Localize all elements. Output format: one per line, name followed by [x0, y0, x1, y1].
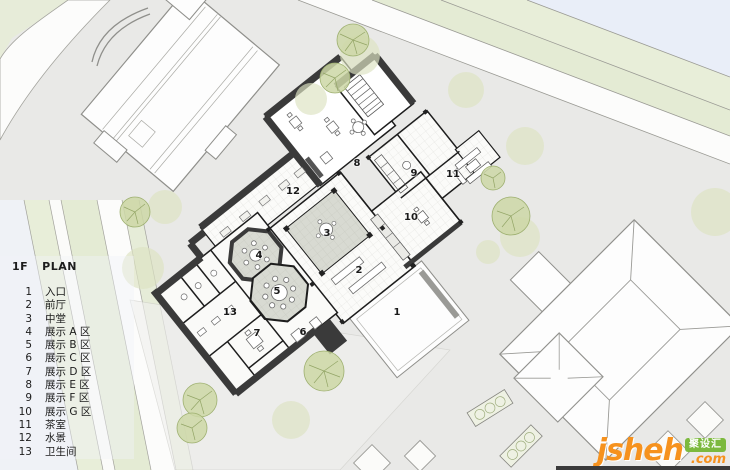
legend-header: 1F PLAN: [12, 260, 134, 273]
watermark-suffix: .com: [691, 453, 726, 466]
legend-item-no: 13: [12, 446, 32, 459]
legend-item: 8展示 E 区: [12, 379, 134, 392]
legend-item-no: 4: [12, 326, 32, 339]
legend-item-no: 1: [12, 286, 32, 299]
legend-item-label: 展示 C 区: [45, 352, 91, 365]
room-label-7: 7: [254, 328, 261, 339]
legend-item-label: 前厅: [45, 299, 66, 312]
room-label-11: 11: [446, 169, 460, 180]
room-label-2: 2: [356, 265, 363, 276]
legend-item-label: 水景: [45, 432, 66, 445]
legend-item-no: 9: [12, 392, 32, 405]
legend-item-no: 5: [12, 339, 32, 352]
legend-item: 7展示 D 区: [12, 366, 134, 379]
legend-item: 5展示 B 区: [12, 339, 134, 352]
legend-item: 11茶室: [12, 419, 134, 432]
watermark-badge: 聚设汇: [685, 438, 726, 452]
legend-item: 10展示 G 区: [12, 406, 134, 419]
legend-panel: 1F PLAN 1入口 2前厅 3中堂 4展示 A 区 5展示 B 区 6展示 …: [0, 256, 134, 459]
room-label-6: 6: [300, 327, 307, 338]
legend-floor: 1F: [12, 260, 28, 273]
legend-item-label: 展示 F 区: [45, 392, 89, 405]
legend-item-no: 12: [12, 432, 32, 445]
legend-item-no: 8: [12, 379, 32, 392]
legend-item: 4展示 A 区: [12, 326, 134, 339]
legend-item-no: 3: [12, 313, 32, 326]
legend-item: 1入口: [12, 286, 134, 299]
legend-item-label: 入口: [45, 286, 66, 299]
room-label-1: 1: [394, 307, 401, 318]
room-label-8: 8: [354, 158, 361, 169]
room-label-3: 3: [324, 228, 331, 239]
legend-item-label: 中堂: [45, 313, 66, 326]
legend-item-label: 展示 G 区: [45, 406, 91, 419]
legend-plan-word: PLAN: [42, 260, 77, 273]
room-label-5: 5: [274, 286, 281, 297]
legend-item-no: 11: [12, 419, 32, 432]
watermark-logo: jsheh 聚设汇 .com: [597, 436, 726, 466]
legend-item-label: 展示 B 区: [45, 339, 90, 352]
legend-item-label: 卫生间: [45, 446, 77, 459]
legend-item: 12水景: [12, 432, 134, 445]
legend-item: 6展示 C 区: [12, 352, 134, 365]
room-label-4: 4: [256, 250, 263, 261]
room-label-13: 13: [223, 307, 237, 318]
legend-item-no: 6: [12, 352, 32, 365]
legend-item-label: 展示 A 区: [45, 326, 90, 339]
legend-item: 3中堂: [12, 313, 134, 326]
bottom-edge-strip: [556, 466, 730, 470]
legend-item-no: 2: [12, 299, 32, 312]
room-label-9: 9: [411, 168, 418, 179]
legend-item-no: 10: [12, 406, 32, 419]
watermark-brand-text: jsheh: [597, 436, 683, 466]
room-label-10: 10: [404, 212, 418, 223]
legend-item-label: 展示 D 区: [45, 366, 91, 379]
legend-item: 2前厅: [12, 299, 134, 312]
legend-item-label: 展示 E 区: [45, 379, 90, 392]
legend-item-no: 7: [12, 366, 32, 379]
legend-item: 13卫生间: [12, 446, 134, 459]
room-label-12: 12: [286, 186, 300, 197]
legend-item: 9展示 F 区: [12, 392, 134, 405]
legend-item-label: 茶室: [45, 419, 66, 432]
